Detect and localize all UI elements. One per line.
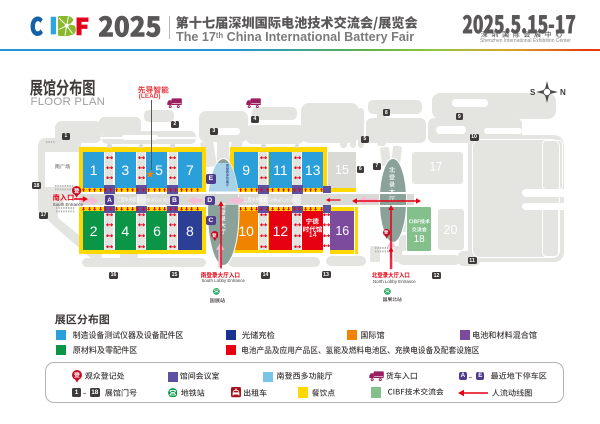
svg-text:N: N: [560, 88, 566, 97]
svg-text:S: S: [530, 88, 536, 97]
